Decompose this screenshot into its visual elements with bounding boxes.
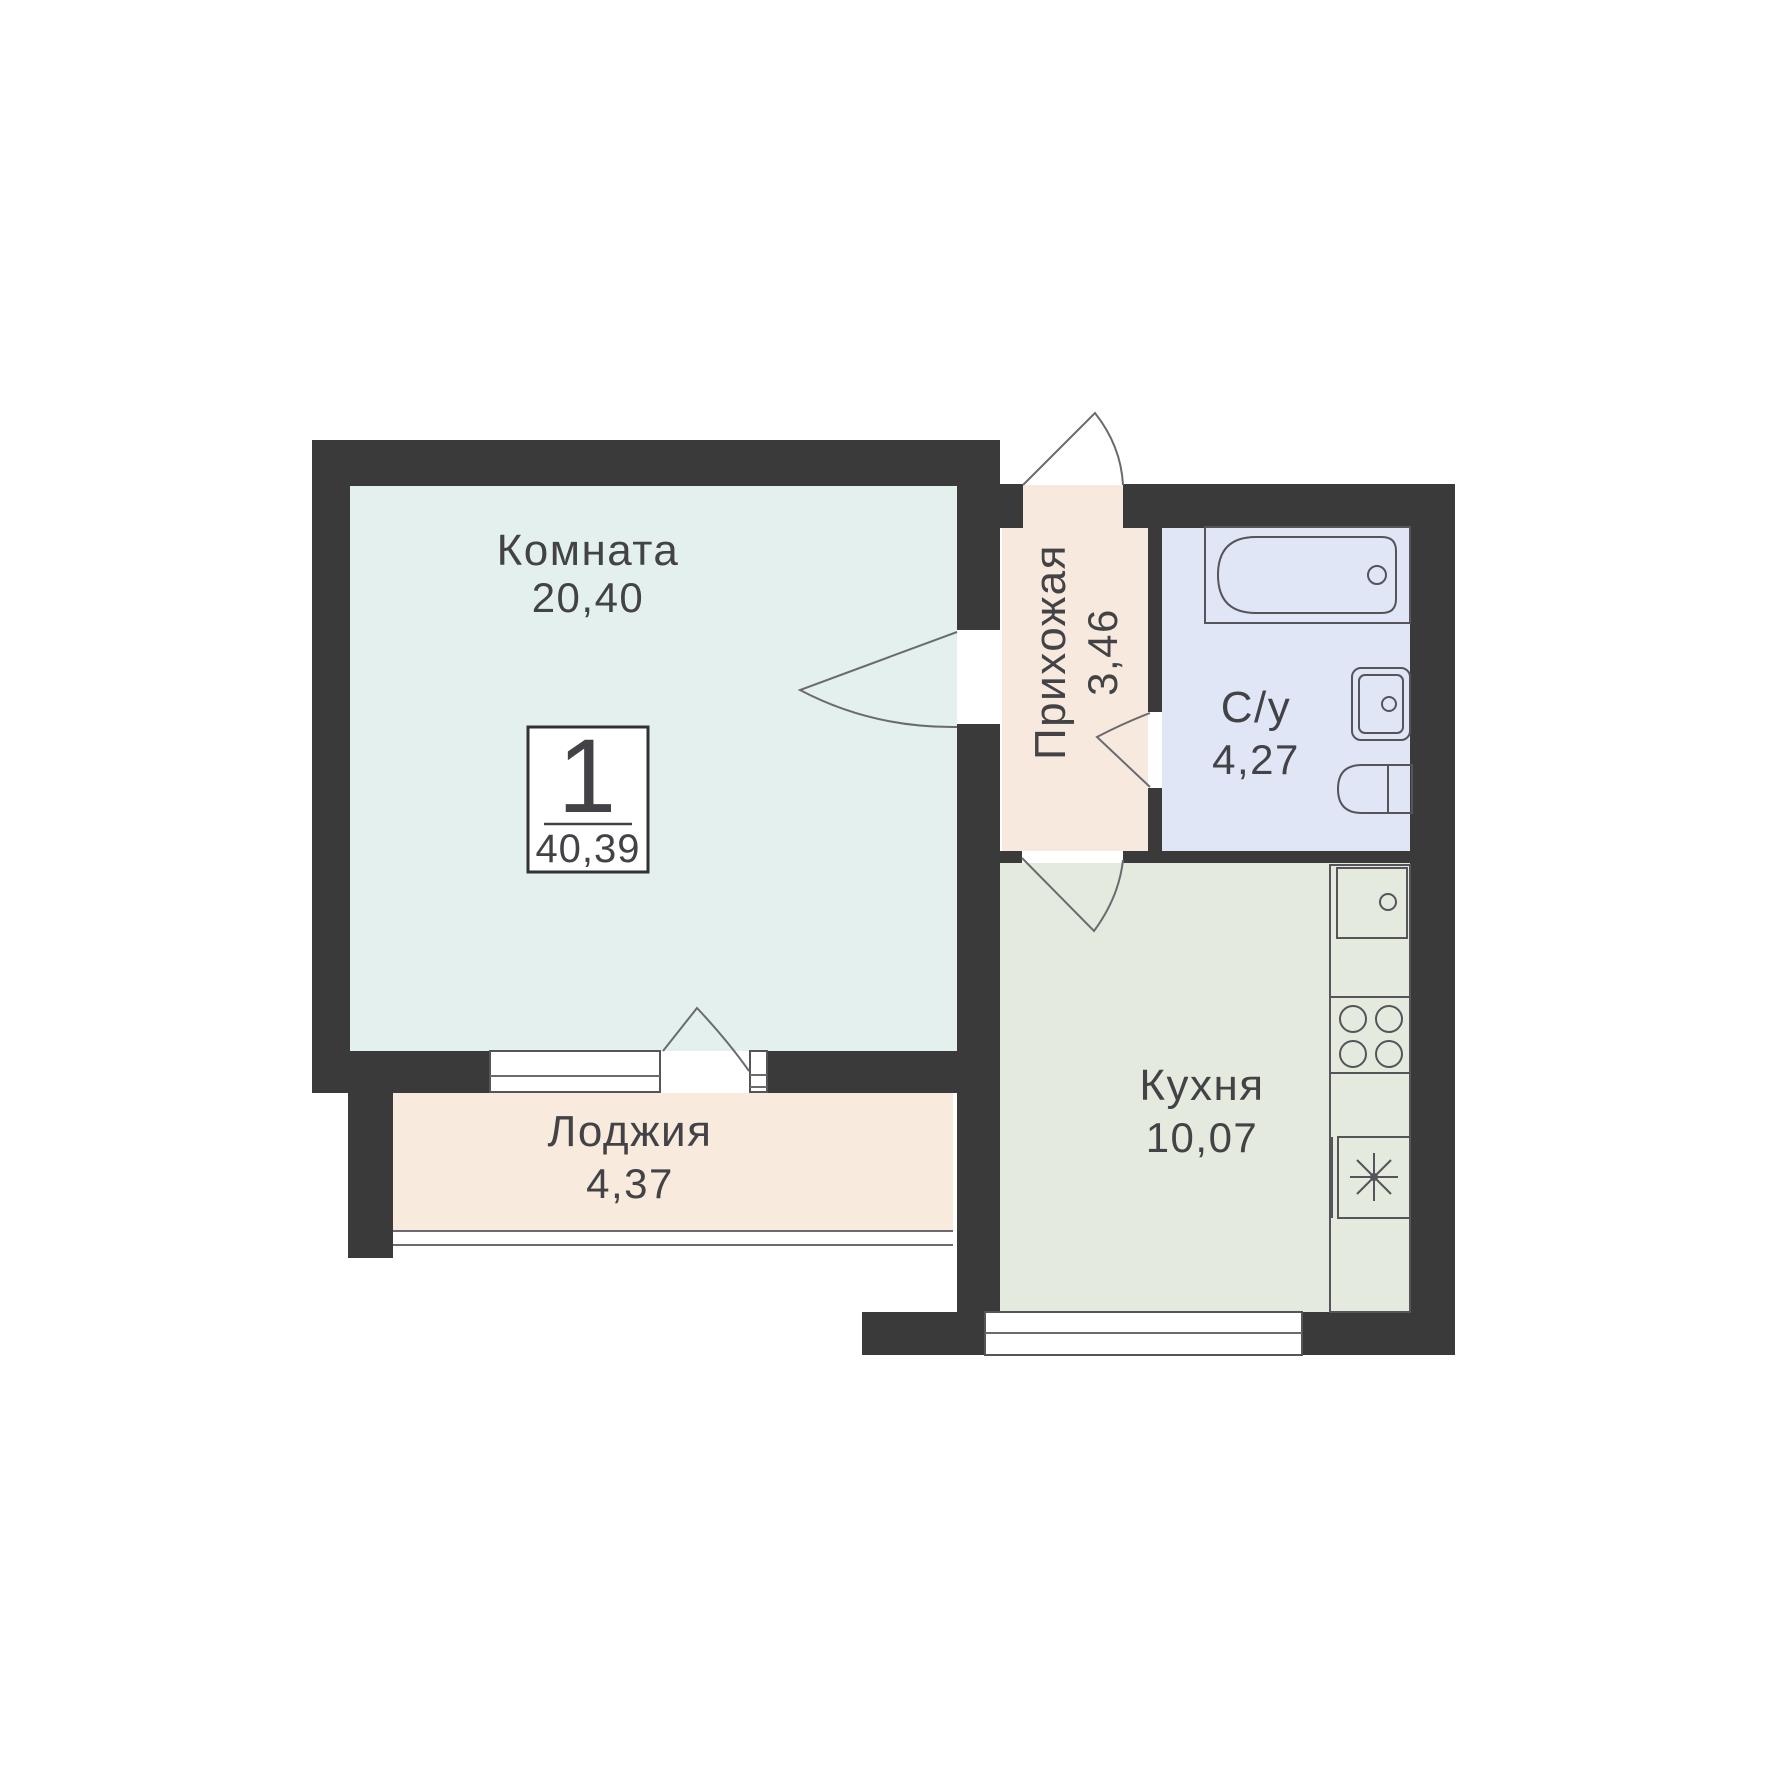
living-room-window xyxy=(490,1051,660,1092)
floor-plan-page: Комната 20,40 Прихожая 3,46 С/у 4,27 Кух… xyxy=(0,0,1772,1772)
badge-total-area: 40,39 xyxy=(535,827,640,871)
wall-segment xyxy=(957,724,1000,1051)
kitchen-area-value: 10,07 xyxy=(1146,1114,1259,1161)
badge-rooms-count: 1 xyxy=(558,718,616,835)
living-room-side-window xyxy=(750,1051,767,1092)
hallway-area xyxy=(1002,528,1148,851)
wall-segment xyxy=(862,1312,985,1355)
wall-segment xyxy=(348,1093,393,1258)
wall-segment xyxy=(1148,528,1162,712)
wall-segment xyxy=(998,484,1023,528)
hallway-label: Прихожая xyxy=(1026,544,1075,760)
wall-segment xyxy=(1123,851,1412,863)
hallway-area-value: 3,46 xyxy=(1079,608,1126,696)
wall-segment xyxy=(312,1051,490,1093)
wall-segment xyxy=(957,440,1000,630)
wall-segment xyxy=(1148,788,1162,851)
bathroom-label: С/у xyxy=(1221,683,1292,732)
loggia-glazing xyxy=(393,1231,953,1245)
entrance-door-arc xyxy=(1023,413,1123,485)
floor-areas xyxy=(350,485,1410,1312)
floor-plan: Комната 20,40 Прихожая 3,46 С/у 4,27 Кух… xyxy=(0,0,1772,1772)
hallway-entry-area xyxy=(1023,485,1123,529)
wall-segment xyxy=(1302,1312,1455,1355)
wall-segment xyxy=(312,440,1000,486)
bathroom-area-value: 4,27 xyxy=(1212,736,1300,783)
wall-segment xyxy=(1123,484,1453,528)
wall-segment xyxy=(1410,484,1455,1355)
kitchen-label: Кухня xyxy=(1139,1061,1264,1110)
kitchen-window xyxy=(985,1312,1302,1355)
living-room-area-value: 20,40 xyxy=(532,574,645,621)
loggia-area-value: 4,37 xyxy=(586,1160,674,1207)
wall-segment xyxy=(312,440,350,1093)
living-room-label: Комната xyxy=(497,526,680,575)
total-area-badge: 1 40,39 xyxy=(528,718,648,872)
wall-segment xyxy=(1000,851,1022,863)
loggia-label: Лоджия xyxy=(548,1107,713,1156)
wall-segment xyxy=(957,1051,1000,1355)
